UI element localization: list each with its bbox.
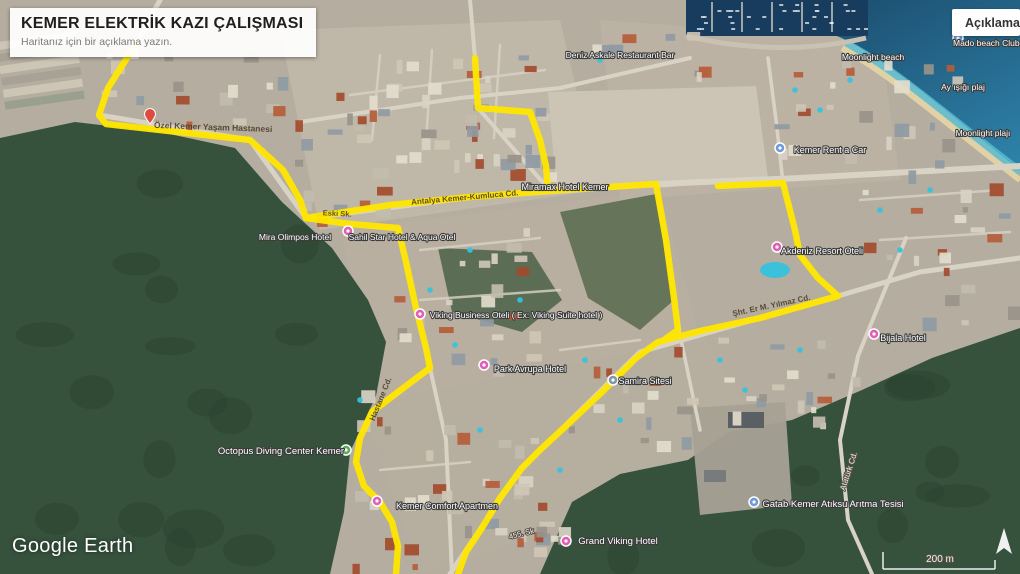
park-avrupa-hotel-marker[interactable]: [479, 360, 489, 370]
page-title[interactable]: KEMER ELEKTRİK KAZI ÇALIŞMASI: [21, 15, 303, 33]
map-label: Moonlight plajı: [956, 128, 1011, 138]
map-label: Miramax Hotel Kemer: [521, 182, 608, 192]
map-label: Kemer Comfort Apartmen: [396, 501, 498, 511]
map-label: Eski Sk.: [323, 208, 352, 218]
map-label: Sahil Star Hotel & Aqua Otel: [349, 232, 456, 242]
map-label: Grand Viking Hotel: [578, 536, 658, 547]
gatab-aritma-tesisi-marker[interactable]: [749, 497, 759, 507]
resort-pool: [760, 262, 790, 278]
kemer-comfort-marker[interactable]: [372, 496, 382, 506]
google-earth-logo: Google Earth: [12, 535, 133, 558]
samira-sitesi-marker[interactable]: [608, 375, 618, 385]
open-lot: [548, 86, 768, 188]
map-label: Bijala Hotel: [880, 333, 926, 343]
map-label: Park Avrupa Hotel: [494, 364, 566, 374]
map-label: Deniz Askale Restaurant Bar: [566, 50, 675, 60]
kemer-rent-a-car-marker[interactable]: [775, 143, 785, 153]
map-label: Moonlight beach: [842, 52, 905, 62]
map-label: Octopus Diving Center Kemer: [218, 446, 344, 457]
map-label: Samira Sitesi: [618, 376, 671, 386]
map-label: Ay ışığı plaj: [941, 82, 985, 92]
map-label: Mira Olimpos Hotel: [259, 232, 331, 242]
map-description-placeholder[interactable]: Haritanız için bir açıklama yazın.: [21, 36, 303, 48]
map-label: Gatab Kemer Atıksu Arıtma Tesisi: [762, 499, 903, 510]
map-label: Akdeniz Resort Oteli: [781, 246, 863, 256]
viking-business-hotel-marker[interactable]: [415, 309, 425, 319]
map-label: Viking Business Oteli ( Ex: Viking Suite…: [430, 310, 603, 320]
bijala-hotel-marker[interactable]: [869, 329, 879, 339]
map-label: Mado beach Club Kemer: [953, 38, 1020, 48]
map-viewport[interactable]: Özel Kemer Yaşam HastanesiAntalya Kemer-…: [0, 0, 1020, 574]
description-button[interactable]: Açıklama: [952, 9, 1020, 36]
grand-viking-hotel-marker[interactable]: [561, 536, 571, 546]
title-card: KEMER ELEKTRİK KAZI ÇALIŞMASI Haritanız …: [10, 8, 316, 57]
excavation-route-ne-top[interactable]: [718, 183, 783, 186]
satellite-basemap[interactable]: Özel Kemer Yaşam HastanesiAntalya Kemer-…: [0, 0, 1020, 574]
map-label: Kemer Rent a Car: [794, 145, 867, 155]
scale-label: 200 m: [926, 554, 954, 565]
